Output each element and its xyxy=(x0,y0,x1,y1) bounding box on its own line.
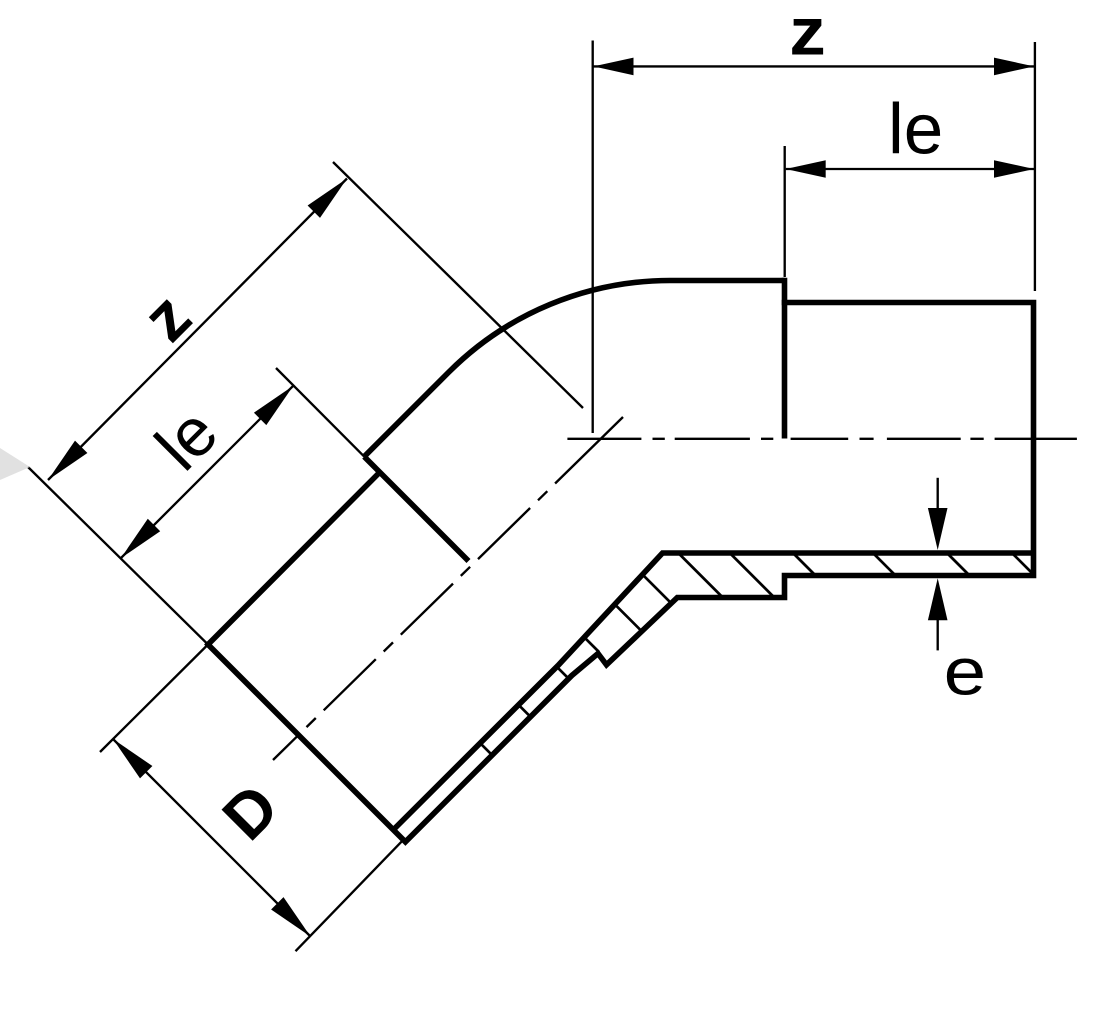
svg-text:le: le xyxy=(888,91,943,170)
svg-text:z: z xyxy=(789,0,826,69)
svg-text:e: e xyxy=(944,635,986,710)
